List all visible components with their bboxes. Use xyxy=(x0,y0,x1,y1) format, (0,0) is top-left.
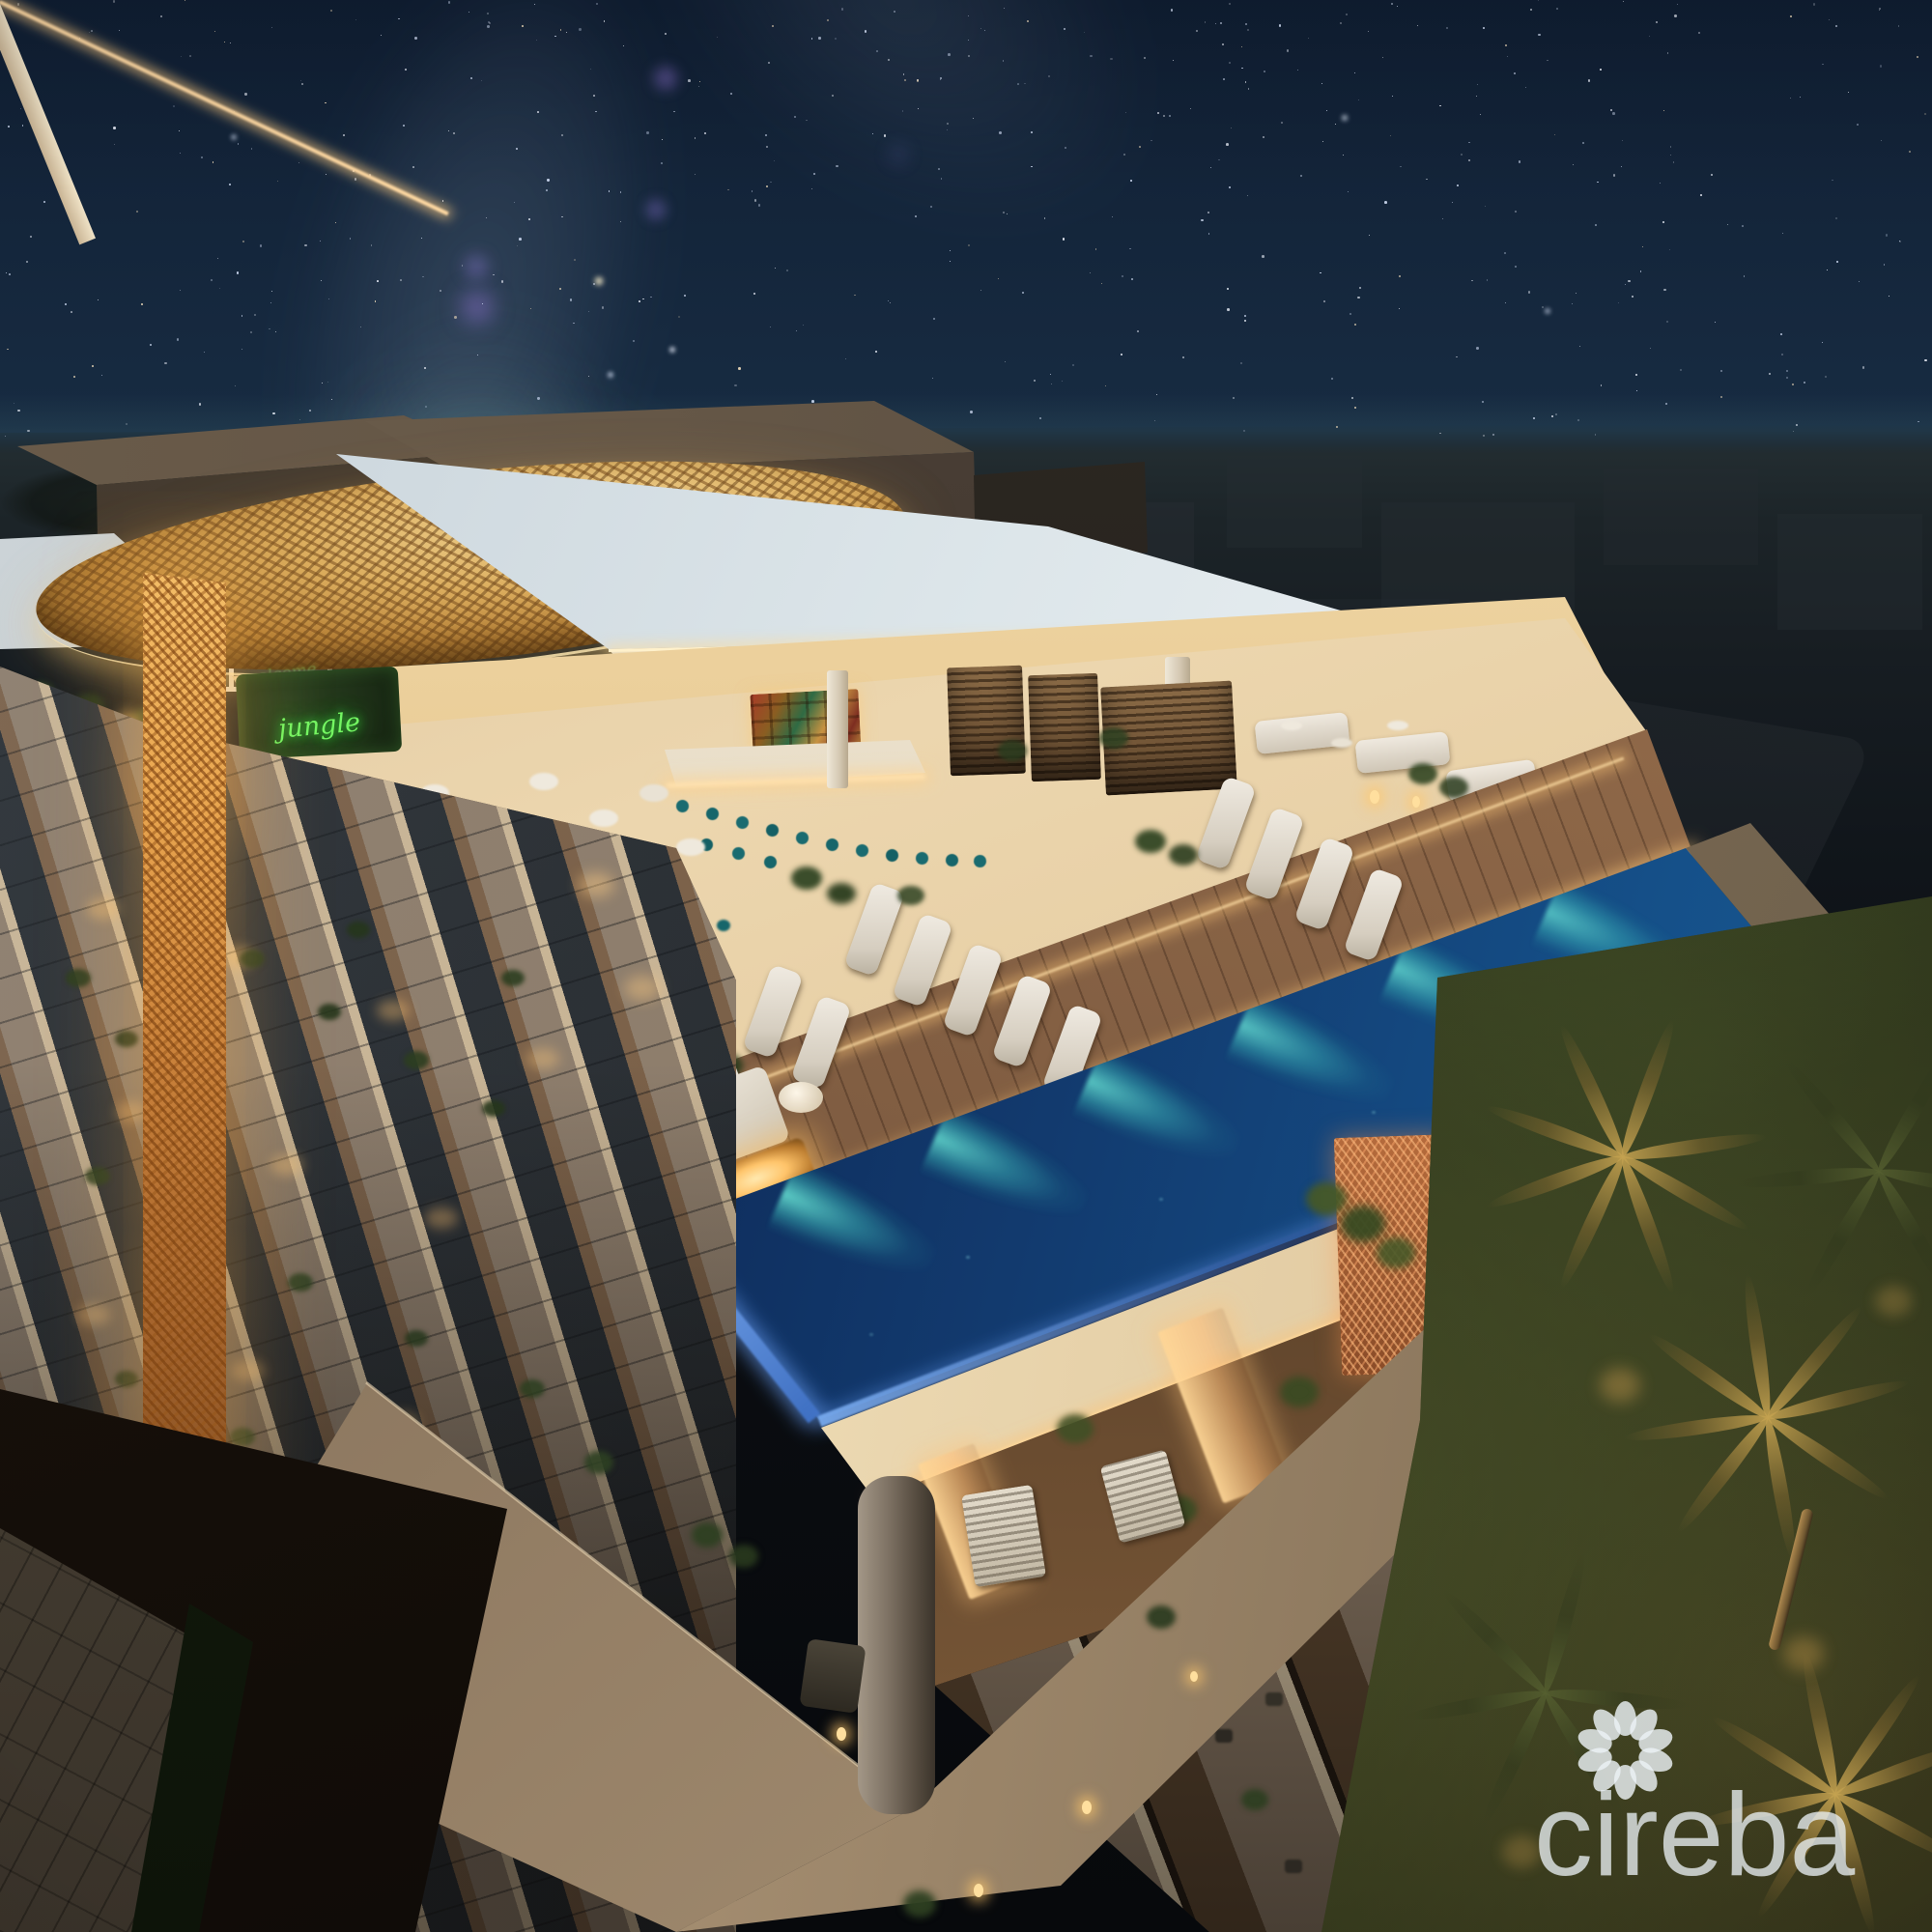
rendering-canvas: welcome to the jungle xyxy=(0,0,1932,1932)
vignette-overlay xyxy=(0,0,1932,1932)
